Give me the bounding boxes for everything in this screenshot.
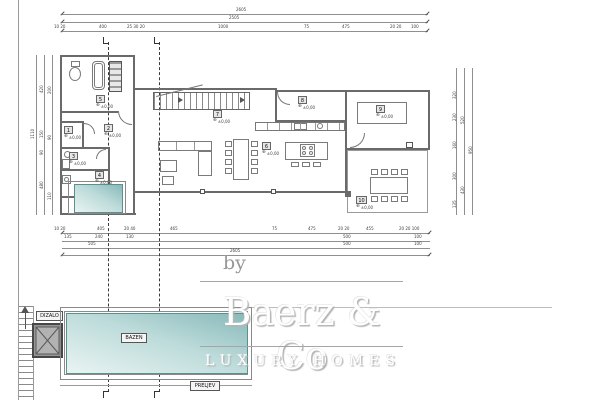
wall (133, 191, 347, 193)
window-marker (200, 189, 205, 194)
wall (345, 90, 347, 150)
outdoor-stairs (19, 306, 33, 400)
room-label-6: 6 ⊕±0,00 (262, 142, 279, 156)
sink-divider (300, 123, 301, 130)
chair (225, 150, 232, 156)
elevation: ⊕±0,00 (95, 180, 112, 185)
wall (60, 121, 84, 123)
coffee-table (160, 160, 177, 172)
elevation-value: ±0,00 (109, 133, 121, 138)
wall (60, 55, 62, 215)
door-arc (277, 92, 290, 105)
dim-label: 465 (170, 227, 178, 231)
plunge-pool (74, 184, 123, 213)
bar-stool (313, 162, 321, 167)
dim-line (44, 55, 45, 215)
elevation-icon: ⊕ (69, 161, 73, 166)
dim-line (36, 55, 37, 215)
watermark-rule-top (200, 281, 403, 282)
dim-line (62, 31, 428, 32)
elevation-value: ±0,00 (218, 119, 230, 124)
room-label-5: 5 ⊕±0,00 (96, 95, 113, 109)
dim-label: 160 (453, 141, 457, 149)
dim-label: 480 (40, 181, 44, 189)
dim-label: 1000 (218, 25, 228, 29)
dim-label: 2505 (229, 16, 239, 20)
dim-label: 320 (453, 91, 457, 99)
stair-arrow-icon (178, 97, 183, 103)
elevation-icon: ⊕ (95, 180, 99, 185)
dim-line (62, 255, 430, 256)
elevation: ⊕±0,00 (213, 119, 230, 124)
elevator-x-icon (34, 325, 61, 356)
elevation-value: ±0,00 (74, 161, 86, 166)
elevation-icon: ⊕ (96, 104, 100, 109)
dim-label: 75 (304, 25, 309, 29)
chair (225, 141, 232, 147)
side-table (162, 176, 174, 185)
room-label-8: 8 ⊕±0,00 (298, 96, 315, 110)
room-number: 5 (96, 95, 105, 103)
chair (401, 169, 408, 175)
section-marker-icon (154, 391, 160, 398)
dim-label: 405 (97, 227, 105, 231)
overflow-label: PRELJEV (190, 381, 220, 391)
chair (371, 169, 378, 175)
room-label-3: 3 ⊕±0,00 (69, 152, 86, 166)
dim-label: 100 (414, 235, 422, 239)
dim-label: 230 (453, 113, 457, 121)
dim-label: 20 40 (124, 227, 135, 231)
chair (381, 196, 388, 202)
burner-icon (302, 151, 306, 155)
room-label-2: 2 ⊕±0,00 (104, 124, 121, 138)
dim-label: 475 (342, 25, 350, 29)
room-label-10: 10 ⊕±0,00 (356, 196, 373, 210)
dim-label: 240 (95, 235, 103, 239)
dim-label: 130 (126, 235, 134, 239)
dim-label: 520 (461, 116, 465, 124)
shower-column-icon (109, 61, 122, 92)
chair (391, 169, 398, 175)
dim-label: 400 (99, 25, 107, 29)
wall (60, 55, 135, 57)
bar-stool (291, 162, 299, 167)
dim-label: 500 (343, 235, 351, 239)
room-number: 6 (262, 142, 271, 150)
door-arc (118, 111, 132, 125)
elevation: ⊕±0,00 (104, 133, 121, 138)
dim-label: 20 20 (338, 227, 349, 231)
dim-label: 75 (272, 227, 277, 231)
elevator-shaft (32, 323, 63, 358)
elevation-value: ±0,00 (101, 104, 113, 109)
dim-label: 455 (366, 227, 374, 231)
dim-label: 135 (453, 200, 457, 208)
dim-label: 90 (40, 150, 44, 155)
elevation-value: ±0,00 (303, 105, 315, 110)
dim-label: 20 20 (390, 25, 401, 29)
elevation: ⊕±0,00 (262, 151, 279, 156)
room-number: 1 (64, 126, 73, 134)
dim-label: 505 (88, 242, 96, 246)
elevation-value: ±0,00 (69, 135, 81, 140)
elevation: ⊕±0,00 (96, 104, 113, 109)
dim-line (62, 241, 430, 242)
chair (391, 196, 398, 202)
floor-plan-canvas: 2605 2505 10 20 400 25 30 20 1000 75 475… (0, 0, 600, 400)
elevation: ⊕±0,00 (356, 205, 373, 210)
dim-label: 950 (469, 146, 473, 154)
toilet-tank (71, 61, 80, 67)
dim-label: 430 (461, 186, 465, 194)
sofa-back (158, 141, 212, 151)
dim-label: 135 (64, 235, 72, 239)
burner-icon (302, 146, 306, 150)
staircase (153, 92, 250, 110)
dim-label: 100 (414, 242, 422, 246)
watermark-tagline: LUXURY HOMES (197, 353, 409, 369)
stairs-up-arrow-icon (21, 306, 29, 313)
elevation: ⊕±0,00 (64, 135, 81, 140)
elevation: ⊕±0,00 (69, 161, 86, 166)
bathtub-inner (94, 63, 103, 88)
terrace-table (370, 177, 408, 194)
dim-label: 100 (411, 25, 419, 29)
device-marker (406, 142, 413, 148)
dim-line (62, 248, 430, 249)
chair (251, 159, 258, 165)
wall (275, 90, 430, 92)
dim-label: 20 20 100 (399, 227, 419, 231)
stair-arrow-icon (240, 97, 245, 103)
bar-stool (302, 162, 310, 167)
section-marker-icon (154, 37, 160, 44)
dim-line (62, 14, 428, 15)
burner-icon (309, 151, 313, 155)
toilet-icon (69, 67, 81, 81)
room-label-9: 9 ⊕±0,00 (376, 105, 393, 119)
room-label-4: 4 ⊕±0,00 (95, 171, 112, 185)
chair (251, 150, 258, 156)
stairs-arrow-stem (25, 313, 26, 329)
burner-icon (309, 146, 313, 150)
dim-label: 420 (40, 85, 44, 93)
elevation-value: ±0,00 (267, 151, 279, 156)
door-arc (84, 123, 95, 134)
elevation-icon: ⊕ (298, 105, 302, 110)
dim-label: 200 (48, 86, 52, 94)
elevation: ⊕±0,00 (298, 105, 315, 110)
room-label-7: 7 ⊕±0,00 (213, 110, 230, 124)
chair (401, 196, 408, 202)
elevation-icon: ⊕ (213, 119, 217, 124)
watermark-by: by (223, 252, 246, 274)
dim-label: 500 (343, 242, 351, 246)
dim-label: 150 (40, 130, 44, 138)
room-number: 10 (356, 196, 367, 204)
elevation-value: ±0,00 (381, 114, 393, 119)
terrace-post (345, 191, 351, 197)
room-number: 2 (104, 124, 113, 132)
elevation-value: ±0,00 (100, 180, 112, 185)
room-number: 9 (376, 105, 385, 113)
sofa-chaise (198, 151, 212, 176)
dim-label: 90 (48, 135, 52, 140)
overflow-line (60, 385, 252, 386)
elevation-icon: ⊕ (356, 205, 360, 210)
wall (135, 88, 277, 90)
window-marker (271, 189, 276, 194)
pool-label: BAZEN (121, 333, 147, 343)
chair (381, 169, 388, 175)
section-marker-icon (103, 391, 109, 398)
dim-label: 10 20 (54, 227, 65, 231)
section-marker-icon (103, 37, 109, 44)
chair (225, 168, 232, 174)
dim-label: 1110 (31, 129, 35, 139)
wall (428, 90, 430, 150)
hob-icon (317, 123, 323, 129)
room-number: 3 (69, 152, 78, 160)
dim-label: 110 (48, 192, 52, 200)
chair (251, 141, 258, 147)
room-number: 8 (298, 96, 307, 104)
dim-label: 25 30 20 (127, 25, 145, 29)
dim-label: 2605 (236, 8, 246, 12)
watermark-rule-bottom (200, 346, 403, 347)
dim-line (62, 233, 430, 234)
room-number: 4 (95, 171, 104, 179)
elevator-label: DIZALO (36, 311, 63, 321)
door-arc (96, 149, 106, 159)
elevation-icon: ⊕ (104, 133, 108, 138)
room-number: 7 (213, 110, 222, 118)
dim-line (472, 68, 473, 215)
chair (225, 159, 232, 165)
chair (251, 168, 258, 174)
dim-line (62, 22, 428, 23)
dim-label: 475 (308, 227, 316, 231)
elevation-value: ±0,00 (361, 205, 373, 210)
wall (60, 111, 118, 113)
elevation: ⊕±0,00 (376, 114, 393, 119)
dim-label: 10 20 (54, 25, 65, 29)
elevation-icon: ⊕ (376, 114, 380, 119)
elevation-icon: ⊕ (64, 135, 68, 140)
elevation-icon: ⊕ (262, 151, 266, 156)
dim-label: 300 (453, 172, 457, 180)
dining-table (233, 139, 249, 180)
room-label-1: 1 ⊕±0,00 (64, 126, 81, 140)
dim-line (52, 55, 53, 215)
door-arc (350, 133, 365, 148)
